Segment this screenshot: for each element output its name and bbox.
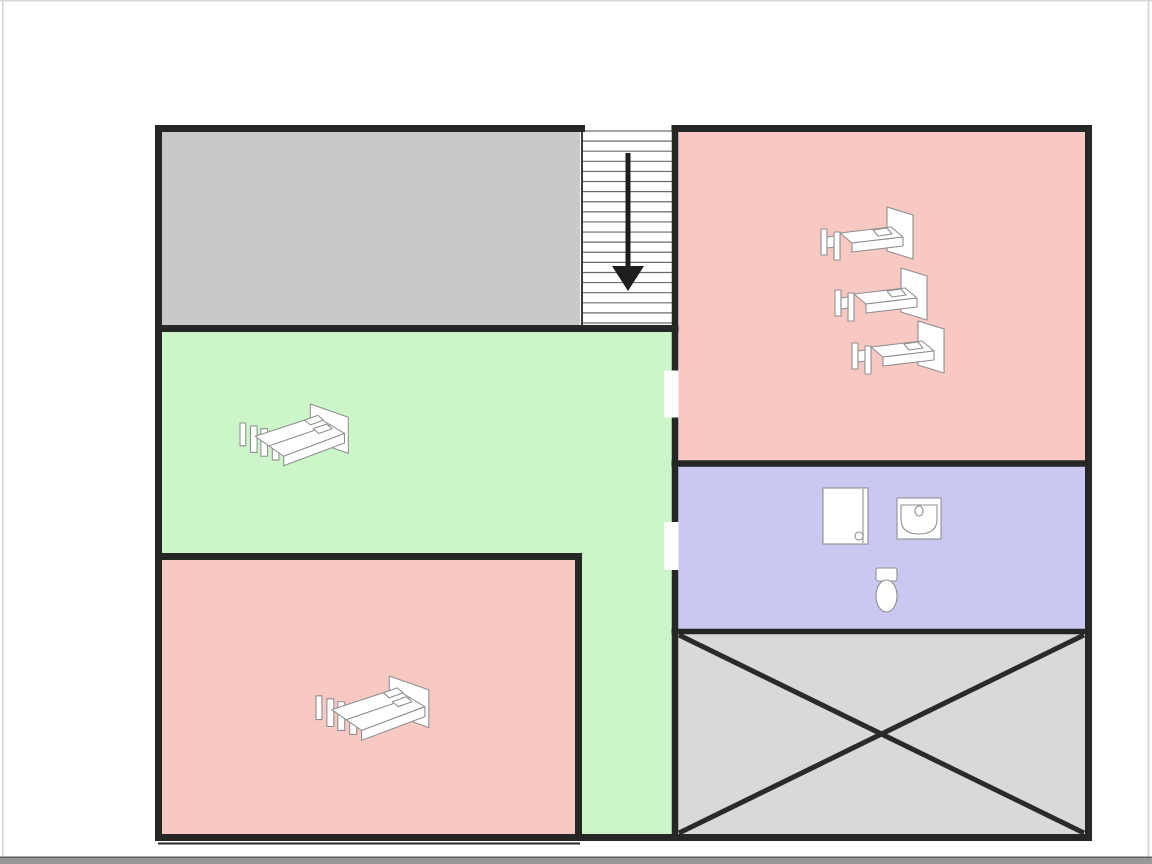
frame-bottom-bar-edge [0,857,1152,859]
frame-top-line [0,0,1152,2]
shower-icon[interactable] [823,488,868,544]
frame-right-line [1148,0,1150,857]
frame-bottom-bar [0,858,1152,864]
toilet-icon[interactable] [876,568,897,612]
room-bedroom-bottom-left[interactable] [158,556,578,837]
sink-icon[interactable] [897,498,941,539]
floorplan-canvas [0,0,1152,864]
frame-left-line [2,0,4,857]
room-gray[interactable] [158,125,584,331]
door-hall-to-bathroom[interactable] [664,522,679,570]
door-hall-to-bedroom-top-right[interactable] [664,371,679,418]
room-bedroom-green-corridor[interactable] [580,325,675,838]
